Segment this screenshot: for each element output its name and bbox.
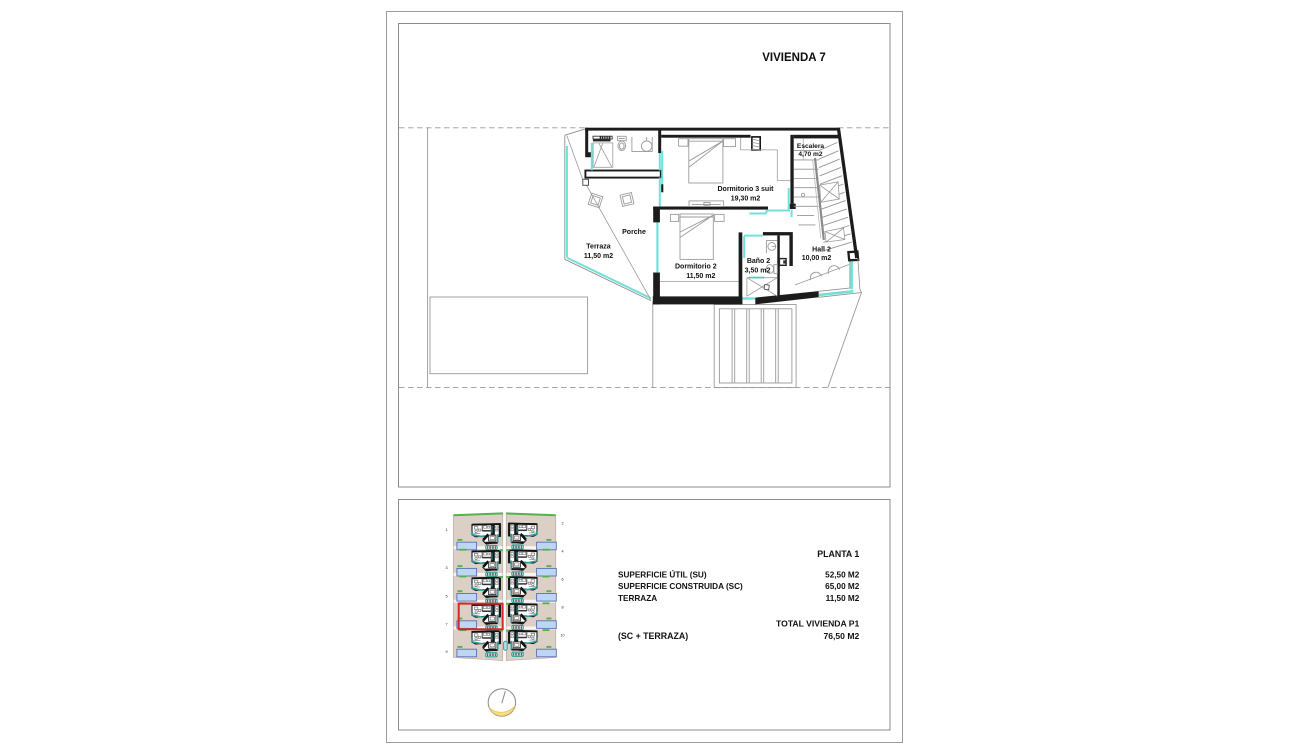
svg-text:TERRAZA: TERRAZA <box>618 594 657 603</box>
svg-text:11,50 M2: 11,50 M2 <box>826 594 860 603</box>
svg-text:Hall 2: Hall 2 <box>812 246 831 253</box>
svg-text:10,00 m2: 10,00 m2 <box>802 255 832 262</box>
svg-text:19,30 m2: 19,30 m2 <box>731 196 761 203</box>
svg-text:Dormitorio 3 suit: Dormitorio 3 suit <box>717 186 774 193</box>
svg-text:11,50 m2: 11,50 m2 <box>584 253 613 260</box>
svg-text:Dormitorio 2: Dormitorio 2 <box>675 263 717 270</box>
svg-text:PLANTA 1: PLANTA 1 <box>817 549 859 559</box>
svg-text:Porche: Porche <box>622 229 646 236</box>
svg-text:Terraza: Terraza <box>586 244 610 251</box>
svg-text:9: 9 <box>445 650 447 654</box>
svg-text:10: 10 <box>560 634 564 638</box>
svg-text:6: 6 <box>561 578 563 582</box>
svg-text:52,50 M2: 52,50 M2 <box>825 570 860 579</box>
svg-text:SUPERFICIE ÚTIL (SU): SUPERFICIE ÚTIL (SU) <box>618 568 707 579</box>
svg-text:3,50 m2: 3,50 m2 <box>745 267 771 274</box>
svg-text:3: 3 <box>445 566 447 570</box>
svg-text:1: 1 <box>445 528 447 532</box>
svg-text:5: 5 <box>445 595 447 599</box>
svg-text:65,00 M2: 65,00 M2 <box>825 582 860 591</box>
svg-text:2: 2 <box>561 522 563 526</box>
svg-text:SUPERFICIE CONSTRUIDA (SC): SUPERFICIE CONSTRUIDA (SC) <box>618 582 743 591</box>
svg-text:11,50 m2: 11,50 m2 <box>686 273 715 280</box>
svg-text:Baño 2: Baño 2 <box>747 258 770 265</box>
svg-text:Escalera: Escalera <box>797 143 824 150</box>
svg-text:TOTAL VIVIENDA P1: TOTAL VIVIENDA P1 <box>776 619 859 629</box>
svg-text:8: 8 <box>561 606 563 610</box>
svg-text:VIVIENDA 7: VIVIENDA 7 <box>762 52 825 64</box>
svg-text:4: 4 <box>561 550 563 554</box>
svg-text:76,50 M2: 76,50 M2 <box>823 631 859 641</box>
svg-text:(SC + TERRAZA): (SC + TERRAZA) <box>618 631 688 641</box>
svg-text:7: 7 <box>445 623 447 627</box>
svg-text:4,70 m2: 4,70 m2 <box>798 151 823 158</box>
